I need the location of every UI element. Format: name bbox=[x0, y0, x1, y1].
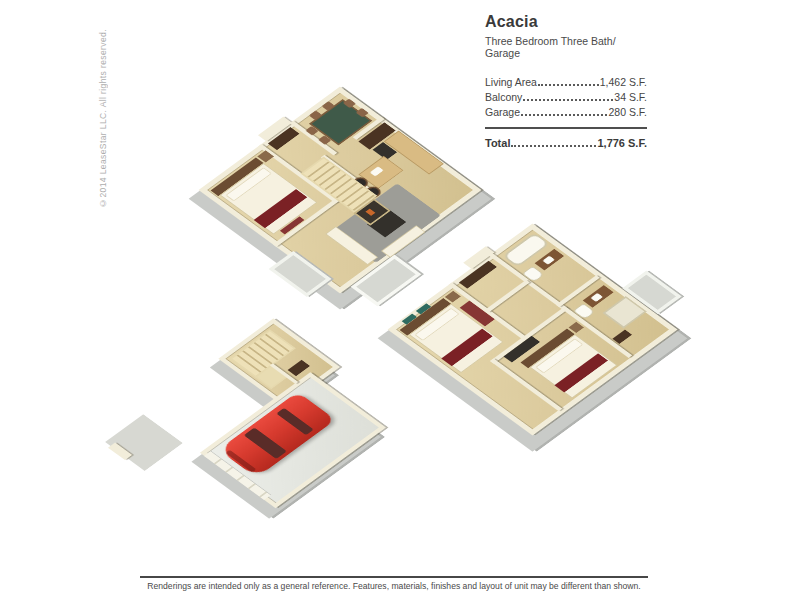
area-row-balcony: Balcony 34 S.F. bbox=[485, 88, 647, 103]
plan-info-block: Acacia Three Bedroom Three Bath/ Garage … bbox=[485, 13, 647, 149]
dotted-leader bbox=[521, 114, 607, 116]
area-label: Garage bbox=[485, 106, 520, 118]
dotted-leader bbox=[523, 99, 613, 101]
area-row-total: Total 1,776 S.F. bbox=[485, 134, 647, 149]
floorplan-sheet: ©2014 LeaseStar LLC. All rights reserved… bbox=[0, 0, 800, 600]
area-value: 1,462 S.F. bbox=[600, 76, 647, 88]
footer-divider-line bbox=[140, 576, 648, 578]
floorplan-garage-level bbox=[145, 322, 392, 503]
total-label: Total bbox=[485, 137, 510, 149]
area-value: 280 S.F. bbox=[608, 106, 647, 118]
car-windshield bbox=[244, 427, 287, 459]
dotted-leader bbox=[538, 84, 599, 86]
disclaimer-text: Renderings are intended only as a genera… bbox=[140, 581, 648, 591]
entry-walkway bbox=[105, 414, 183, 471]
plan-title: Acacia bbox=[485, 13, 647, 31]
area-label: Balcony bbox=[485, 91, 522, 103]
total-value: 1,776 S.F. bbox=[597, 137, 647, 149]
area-row-garage: Garage 280 S.F. bbox=[485, 103, 647, 118]
copyright-text: ©2014 LeaseStar LLC. All rights reserved… bbox=[98, 12, 113, 208]
floorplan-second-floor bbox=[388, 223, 678, 435]
floorplan-first-floor bbox=[199, 87, 482, 294]
total-divider-line bbox=[485, 127, 647, 129]
area-row-living: Living Area 1,462 S.F. bbox=[485, 73, 647, 88]
area-value: 34 S.F. bbox=[614, 91, 647, 103]
plan-subtitle: Three Bedroom Three Bath/ Garage bbox=[485, 35, 647, 59]
area-label: Living Area bbox=[485, 76, 537, 88]
area-table: Living Area 1,462 S.F. Balcony 34 S.F. G… bbox=[485, 73, 647, 149]
dotted-leader bbox=[511, 145, 596, 147]
